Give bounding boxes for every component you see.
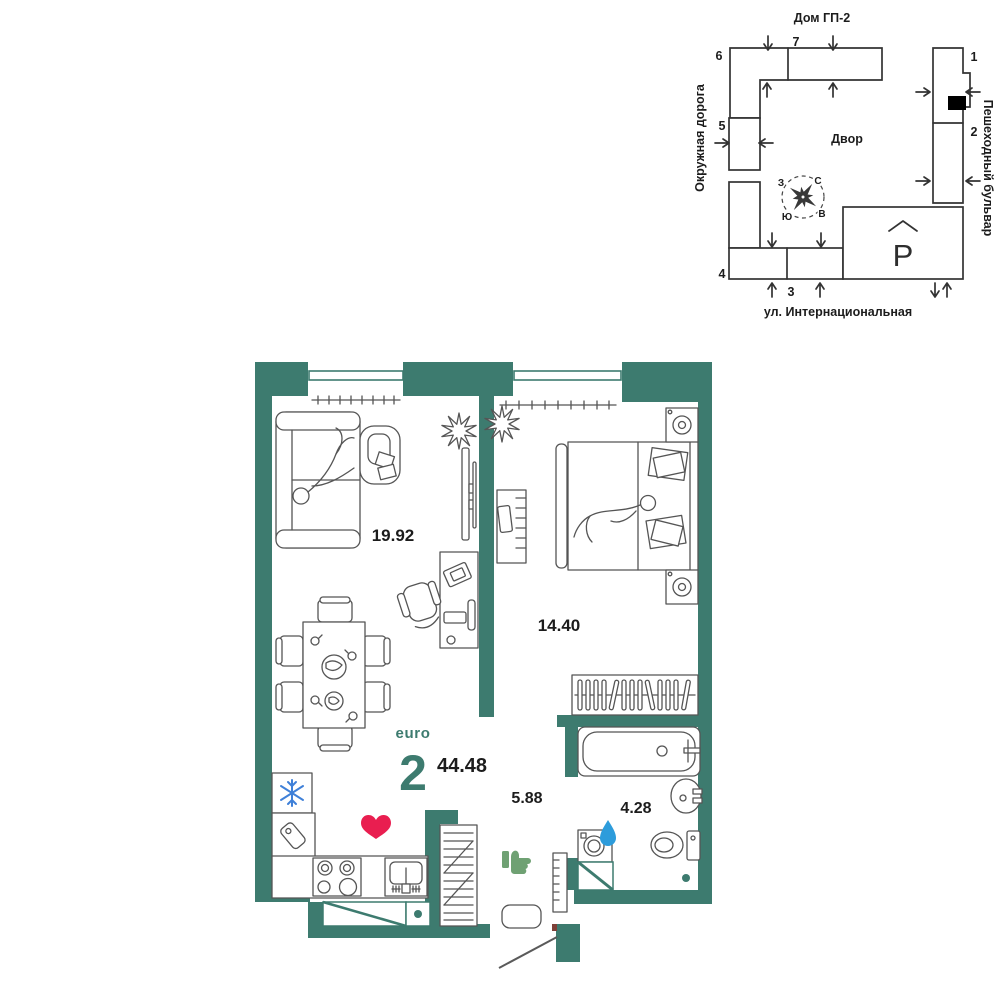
floorplan-page: Дом ГП-2 Р [0,0,1000,1000]
section-number: 1 [971,50,978,64]
compass-south: Ю [782,212,792,223]
radiator [500,401,616,409]
door-stop-dot [682,874,690,882]
compass-north: С [814,176,821,187]
plant-icon [442,413,476,449]
section-number: 2 [971,125,978,139]
stove [313,858,361,896]
bed [556,440,698,572]
section-number: 6 [716,49,723,63]
tv [462,448,476,540]
courtyard-label: Двор [831,132,863,146]
bathroom-sink [671,779,702,813]
doormat [502,905,541,928]
wardrobe-hallway [440,825,477,926]
floor-plan: 19.92 14.40 5.88 4.28 euro 2 44.48 [255,362,712,968]
section-number: 4 [719,267,726,281]
parapet-niche [323,902,430,926]
compass-icon: С З Ю В [778,176,826,223]
apartment-rooms-count: 2 [399,745,427,801]
wardrobe-bedroom [572,675,698,715]
street-label-right: Пешеходный бульвар [981,100,995,237]
street-label-bottom: ул. Интернациональная [764,305,912,319]
heart-icon [361,815,391,839]
room-area-bathroom: 4.28 [620,800,651,817]
thumbs-up-icon [502,851,531,874]
nightstand-speaker [666,570,698,604]
bathroom-door [578,862,613,890]
tv-cabinet [497,490,526,563]
section-number: 3 [788,285,795,299]
parking-building: Р [843,207,963,279]
bathtub [578,727,700,776]
desk [440,552,478,648]
apartment-total-area: 44.48 [437,755,487,777]
shoe-rack [553,853,567,912]
entrance-door [499,924,557,968]
toilet [651,831,700,860]
section-number: 5 [719,119,726,133]
coffee-table [360,426,400,484]
compass-east: В [818,209,825,220]
apartment-location-marker [948,96,966,110]
section-number: 7 [793,35,800,49]
room-area-hallway: 5.88 [511,790,542,807]
sofa [276,412,360,548]
parking-label: Р [893,238,914,273]
window [514,371,621,380]
compass-west: З [778,178,784,189]
room-area-living: 19.92 [372,526,415,545]
kitchen-sink [385,858,427,896]
street-label-left: Окружная дорога [693,83,707,192]
dining-table [276,597,390,751]
apartment-type-label: euro [396,725,431,742]
nightstand-speaker [666,408,698,442]
room-area-bedroom: 14.40 [538,616,581,635]
office-chair [395,579,447,633]
water-drop-icon [600,820,616,846]
window [309,371,403,380]
site-plan-title: Дом ГП-2 [794,11,850,25]
site-plan: Дом ГП-2 Р [693,11,995,319]
radiator [312,396,400,404]
